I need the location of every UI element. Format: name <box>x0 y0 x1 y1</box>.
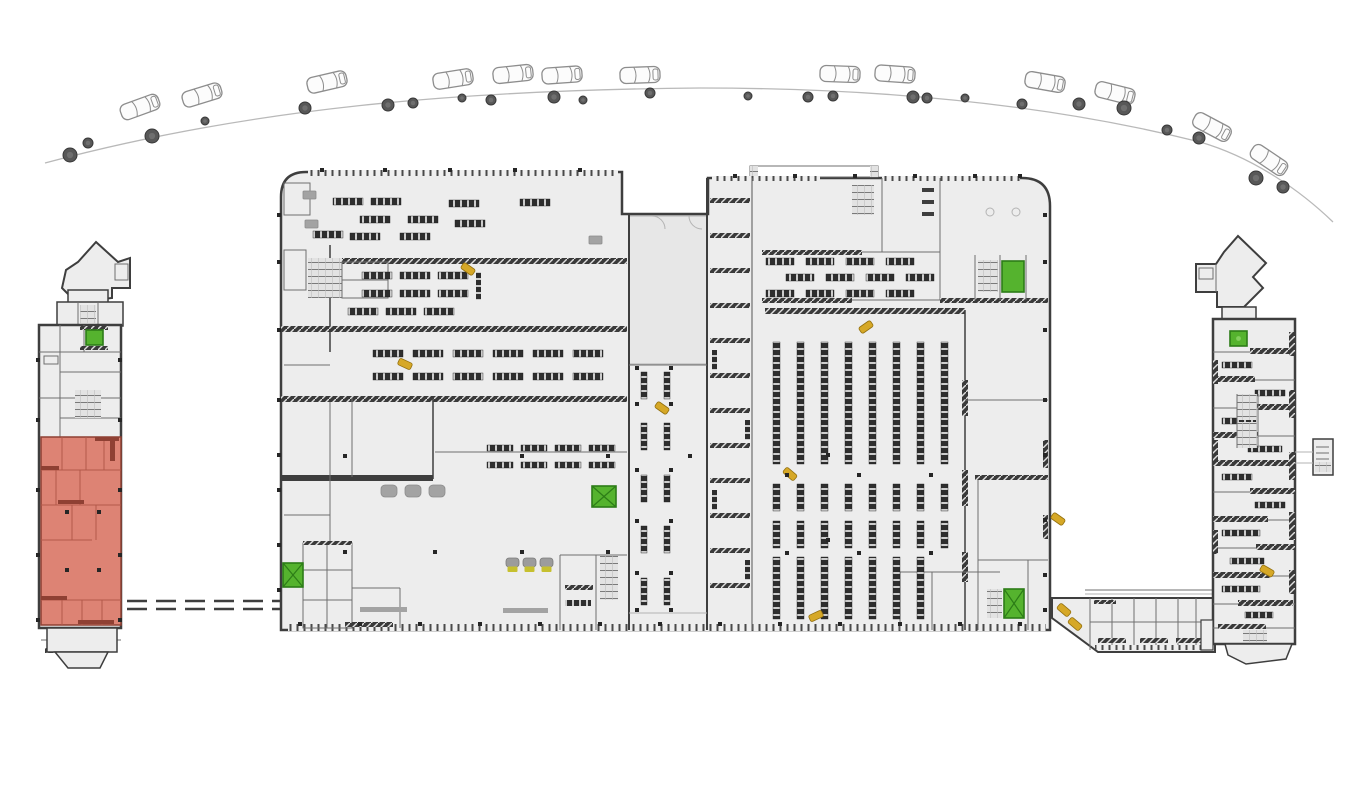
column-dot <box>513 168 517 172</box>
hatched-wall <box>962 380 968 416</box>
column-dot <box>277 488 281 492</box>
column-dot <box>853 174 857 178</box>
column-dot <box>433 550 437 554</box>
hatched-wall <box>712 176 820 181</box>
chair-seat <box>542 567 552 573</box>
hatched-wall <box>762 250 862 255</box>
tree-crown <box>1196 135 1201 140</box>
desk-column <box>797 521 804 548</box>
column-dot <box>1043 398 1047 402</box>
car-icon <box>492 64 533 84</box>
car-icon <box>306 70 349 95</box>
plan-rect <box>1222 307 1256 319</box>
plan-rect[interactable] <box>95 437 119 441</box>
desk-pair <box>641 578 647 605</box>
desk-row <box>1255 502 1285 508</box>
hatched-wall <box>987 589 1002 618</box>
plan-rect <box>745 560 750 580</box>
hatched-wall <box>710 338 750 343</box>
plan-rect <box>429 485 445 497</box>
column-dot <box>36 358 40 362</box>
column-dot <box>320 168 324 172</box>
desk-column <box>773 521 780 548</box>
desk-row <box>413 350 443 357</box>
desk-row <box>1222 586 1260 592</box>
desk-row <box>1222 474 1252 480</box>
plan-rect[interactable] <box>58 500 84 504</box>
hatched-wall <box>330 258 627 264</box>
plan-rect <box>922 188 934 192</box>
hatched-wall <box>1213 360 1218 384</box>
column-dot <box>669 402 673 406</box>
car-icon <box>1024 71 1066 94</box>
hatched-wall <box>1213 376 1255 382</box>
tree-crown <box>67 152 73 158</box>
column-dot[interactable] <box>97 510 101 514</box>
tree-crown <box>925 96 930 101</box>
car-icon <box>1094 80 1137 105</box>
column-dot <box>688 454 692 458</box>
column-dot <box>669 366 673 370</box>
column-dot <box>635 571 639 575</box>
plan-rect <box>47 628 117 652</box>
desk-row <box>589 445 615 451</box>
desk-row <box>449 200 479 207</box>
hatched-wall <box>1213 440 1218 464</box>
column-dot <box>277 453 281 457</box>
plan-path <box>45 88 1333 222</box>
chair-seat <box>525 567 535 573</box>
desk-row <box>487 445 513 451</box>
desk-row <box>866 274 894 281</box>
hatched-wall <box>852 185 874 215</box>
tree-crown <box>203 119 207 123</box>
elevator-core <box>1002 261 1024 292</box>
desk-column <box>845 342 852 464</box>
plan-rect <box>360 607 407 612</box>
group-right-wing <box>1196 236 1333 664</box>
hatched-wall <box>710 233 750 238</box>
desk-row <box>806 290 834 297</box>
hatched-wall <box>345 622 393 627</box>
tree-crown <box>1076 101 1081 106</box>
desk-row <box>362 272 392 279</box>
plan-rect <box>503 608 548 613</box>
plan-path <box>1225 644 1292 664</box>
desk-row <box>555 445 581 451</box>
tree-crown <box>1020 102 1025 107</box>
tree-crown <box>1253 175 1259 181</box>
tree-crown <box>746 94 750 98</box>
desk-column <box>821 342 828 464</box>
column-dot <box>520 550 524 554</box>
hatched-wall <box>870 166 878 177</box>
column-dot <box>669 571 673 575</box>
group-connector-left <box>127 601 281 609</box>
hatched-wall <box>1094 600 1116 604</box>
desk-row <box>333 198 363 205</box>
desk-row <box>886 290 914 297</box>
desk-column <box>821 521 828 548</box>
hatched-wall <box>1237 422 1257 448</box>
plan-rect <box>405 485 421 497</box>
desk-column <box>941 484 948 511</box>
column-dot <box>838 622 842 626</box>
column-dot <box>1043 453 1047 457</box>
hatched-wall <box>750 166 758 177</box>
desk-row <box>555 462 581 468</box>
desk-column <box>773 342 780 464</box>
hatched-wall <box>975 475 1048 480</box>
desk-row <box>371 198 401 205</box>
tree-crown <box>385 102 390 107</box>
desk-row <box>350 233 380 240</box>
elevator-core <box>86 330 103 345</box>
hatched-wall <box>308 170 618 176</box>
desk-pair <box>664 475 670 502</box>
hatched-wall <box>940 298 1048 303</box>
group-perimeter-road <box>45 64 1333 222</box>
plan-path <box>55 652 108 668</box>
hatched-wall <box>1237 394 1257 420</box>
column-dot <box>658 622 662 626</box>
desk-column <box>845 521 852 548</box>
column-dot <box>857 473 861 477</box>
tree-crown <box>302 105 307 110</box>
column-dot <box>1043 573 1047 577</box>
plan-rect[interactable] <box>78 620 114 624</box>
desk-column <box>893 557 900 619</box>
desk-row <box>373 373 403 380</box>
column-dot <box>277 260 281 264</box>
column-dot <box>958 622 962 626</box>
column-dot <box>36 418 40 422</box>
hatched-wall <box>710 408 750 413</box>
desk-row <box>493 373 523 380</box>
desk-column <box>869 557 876 619</box>
desk-pair <box>664 578 670 605</box>
hatched-wall <box>1176 638 1202 643</box>
hatched-wall <box>1250 488 1295 494</box>
column-dot <box>598 622 602 626</box>
desk-row <box>1230 558 1264 564</box>
hatched-wall <box>1238 600 1293 606</box>
hatched-wall <box>80 346 108 350</box>
column-dot <box>606 454 610 458</box>
column-dot <box>1018 622 1022 626</box>
column-dot <box>973 174 977 178</box>
hatched-wall <box>1213 460 1295 466</box>
desk-column <box>845 484 852 511</box>
hatched-wall <box>1256 544 1295 550</box>
desk-row <box>400 290 430 297</box>
hatched-wall <box>962 470 968 506</box>
column-dot <box>36 488 40 492</box>
desk-pair <box>664 372 670 399</box>
desk-row <box>348 308 378 315</box>
plan-rect[interactable] <box>110 441 115 461</box>
plan-rect <box>381 485 397 497</box>
desk-column <box>917 557 924 619</box>
column-dot <box>383 168 387 172</box>
column-dot <box>578 168 582 172</box>
tree-crown <box>551 94 556 99</box>
column-dot <box>520 454 524 458</box>
hatched-wall <box>882 176 1020 181</box>
tree-crown <box>1280 184 1285 189</box>
desk-row <box>521 445 547 451</box>
tree-crown <box>411 101 416 106</box>
desk-row <box>487 462 513 468</box>
desk-row <box>1255 390 1285 396</box>
desk-row <box>1245 612 1273 618</box>
column-dot <box>118 358 122 362</box>
column-dot <box>778 622 782 626</box>
column-dot <box>277 328 281 332</box>
hatched-wall <box>710 198 750 203</box>
desk-row <box>413 373 443 380</box>
desk-column <box>869 484 876 511</box>
desk-row <box>846 258 874 265</box>
hatched-wall <box>308 258 342 298</box>
desk-row <box>520 199 550 206</box>
desk-row <box>906 274 934 281</box>
desk-row <box>438 272 468 279</box>
column-dot <box>118 488 122 492</box>
hatched-wall <box>1218 624 1266 629</box>
column-dot <box>343 454 347 458</box>
car-icon <box>820 65 861 82</box>
column-dot <box>1043 608 1047 612</box>
group-main-building <box>281 166 1050 631</box>
desk-pair <box>664 423 670 450</box>
hatched-wall <box>1289 452 1295 480</box>
plan-rect <box>922 200 934 204</box>
car-icon <box>118 93 161 122</box>
plan-rect <box>1201 620 1213 650</box>
desk-column <box>893 342 900 464</box>
plan-rect <box>712 490 717 510</box>
desk-column <box>941 521 948 548</box>
column-dot <box>733 174 737 178</box>
desk-row <box>766 290 794 297</box>
hatched-wall <box>281 326 627 332</box>
desk-row <box>360 216 390 223</box>
hatched-wall <box>303 541 352 545</box>
car-icon <box>181 82 224 109</box>
desk-column <box>821 484 828 511</box>
desk-row <box>373 350 403 357</box>
hatched-wall <box>565 585 593 590</box>
hatched-wall <box>710 583 750 588</box>
tree-crown <box>910 94 915 99</box>
column-dot <box>826 453 830 457</box>
desk-pair <box>641 372 647 399</box>
chair-icon <box>506 558 519 567</box>
chair-icon <box>540 558 553 567</box>
tree-crown <box>489 98 494 103</box>
seat-marker <box>1050 512 1065 526</box>
hatched-wall <box>978 260 998 292</box>
plan-path <box>1196 236 1266 307</box>
tree-crown <box>806 95 811 100</box>
column-dot <box>1043 260 1047 264</box>
plan-rect <box>745 420 750 440</box>
column-dot <box>277 588 281 592</box>
column-dot <box>448 168 452 172</box>
desk-pair <box>641 526 647 553</box>
column-dot <box>669 468 673 472</box>
column-dot <box>1043 518 1047 522</box>
desk-column <box>869 342 876 464</box>
chair-icon <box>523 558 536 567</box>
hatched-wall <box>80 305 96 323</box>
column-dot[interactable] <box>65 568 69 572</box>
column-dot <box>277 543 281 547</box>
plan-rect[interactable] <box>41 466 59 470</box>
car-icon <box>874 65 915 84</box>
desk-column <box>917 342 924 464</box>
desk-row <box>786 274 814 281</box>
hatched-wall <box>1213 572 1271 578</box>
desk-pair <box>664 526 670 553</box>
column-dot <box>606 550 610 554</box>
group-highlighted-unit-red[interactable] <box>41 437 121 625</box>
column-dot <box>785 473 789 477</box>
desk-column <box>797 342 804 464</box>
column-dot <box>913 174 917 178</box>
desk-row <box>493 350 523 357</box>
desk-column <box>893 484 900 511</box>
column-dot <box>118 553 122 557</box>
desk-row <box>533 373 563 380</box>
hatched-wall <box>962 552 968 582</box>
hatched-wall <box>1315 462 1331 472</box>
desk-row <box>386 308 416 315</box>
desk-row <box>1222 530 1260 536</box>
column-dot <box>635 608 639 612</box>
column-dot <box>1018 174 1022 178</box>
tree-crown <box>581 98 585 102</box>
hatched-wall <box>600 556 618 600</box>
hatched-wall <box>1289 570 1295 594</box>
desk-row <box>362 290 392 297</box>
column-dot[interactable] <box>97 568 101 572</box>
hatched-wall <box>710 478 750 483</box>
desk-row <box>589 462 615 468</box>
seat-marker-icon <box>1050 512 1065 526</box>
column-dot <box>277 213 281 217</box>
desk-row <box>886 258 914 265</box>
hatched-wall <box>710 268 750 273</box>
desk-row <box>424 308 454 315</box>
car-icon <box>620 66 661 83</box>
desk-column <box>941 342 948 464</box>
desk-row <box>846 290 874 297</box>
plan-rect <box>922 212 934 216</box>
desk-column <box>797 557 804 619</box>
tree-crown <box>1121 105 1127 111</box>
desk-column <box>773 484 780 511</box>
desk-row <box>453 350 483 357</box>
column-dot <box>478 622 482 626</box>
plan-rect <box>303 191 316 199</box>
floor-plan-canvas <box>0 0 1362 800</box>
desk-row <box>313 231 343 238</box>
tree-crown <box>963 96 967 100</box>
hatched-wall <box>1213 530 1218 554</box>
column-dot <box>538 622 542 626</box>
column-dot <box>36 553 40 557</box>
tree-crown <box>1165 128 1170 133</box>
column-dot <box>298 622 302 626</box>
plan-rect[interactable] <box>41 596 67 600</box>
hatched-wall <box>1095 645 1210 650</box>
desk-pair <box>641 475 647 502</box>
desk-row <box>400 272 430 279</box>
tree-crown <box>86 141 91 146</box>
tree-crown <box>460 96 464 100</box>
desk-pair <box>641 423 647 450</box>
column-dot <box>929 473 933 477</box>
desk-row <box>806 258 834 265</box>
plan-rect <box>750 166 878 177</box>
plan-rect <box>589 236 602 244</box>
plan-rect <box>565 600 591 606</box>
plan-rect <box>712 350 717 370</box>
floor-plan-page <box>0 0 1362 800</box>
column-dot <box>277 398 281 402</box>
column-dot <box>929 551 933 555</box>
tree-crown <box>648 91 653 96</box>
desk-row <box>400 233 430 240</box>
column-dot[interactable] <box>65 510 69 514</box>
desk-column <box>845 557 852 619</box>
hatched-wall <box>1289 332 1295 356</box>
chair-seat <box>508 567 518 573</box>
desk-column <box>773 557 780 619</box>
desk-row <box>573 350 603 357</box>
desk-column <box>797 484 804 511</box>
desk-row <box>455 220 485 227</box>
hatched-wall <box>1250 348 1295 354</box>
hatched-wall <box>710 513 750 518</box>
hatched-wall <box>75 390 101 418</box>
hatched-wall <box>762 298 852 303</box>
column-dot <box>669 519 673 523</box>
hatched-wall <box>281 396 627 402</box>
desk-row <box>521 462 547 468</box>
desk-row <box>1222 362 1252 368</box>
plan-rect <box>629 216 707 364</box>
desk-column <box>917 521 924 548</box>
column-dot <box>635 519 639 523</box>
plan-rect <box>305 220 318 228</box>
hatched-wall <box>1213 516 1268 522</box>
car-icon <box>432 68 474 90</box>
column-dot <box>1043 213 1047 217</box>
column-dot <box>635 366 639 370</box>
hatched-wall <box>710 373 750 378</box>
column-dot <box>785 551 789 555</box>
column-dot <box>857 551 861 555</box>
desk-row <box>826 274 854 281</box>
desk-column <box>869 521 876 548</box>
column-dot <box>635 402 639 406</box>
hatched-wall <box>765 308 965 314</box>
column-dot <box>343 550 347 554</box>
column-dot <box>826 538 830 542</box>
